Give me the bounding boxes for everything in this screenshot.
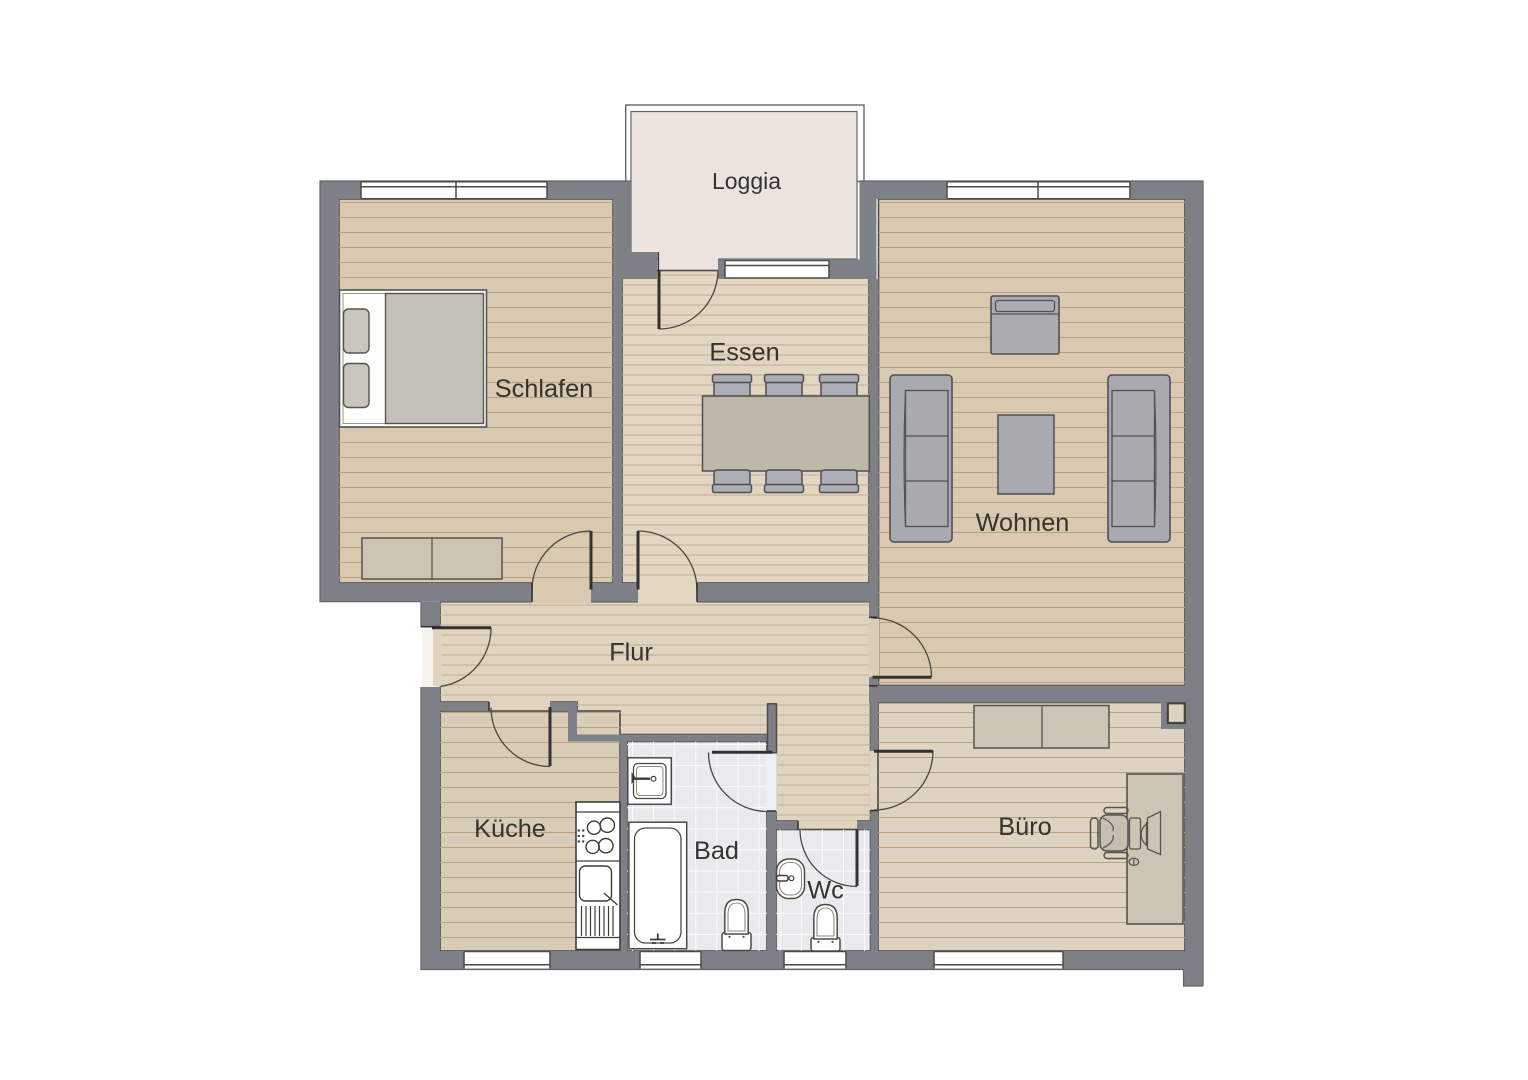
svg-text:Wohnen: Wohnen <box>976 509 1070 537</box>
svg-text:Wc: Wc <box>807 877 844 905</box>
svg-text:Loggia: Loggia <box>712 168 781 194</box>
svg-text:Schlafen: Schlafen <box>495 375 593 403</box>
svg-text:Essen: Essen <box>709 339 779 367</box>
svg-text:Flur: Flur <box>609 639 653 667</box>
svg-text:Küche: Küche <box>474 815 546 843</box>
svg-text:Büro: Büro <box>998 813 1051 841</box>
svg-text:Bad: Bad <box>694 837 739 865</box>
